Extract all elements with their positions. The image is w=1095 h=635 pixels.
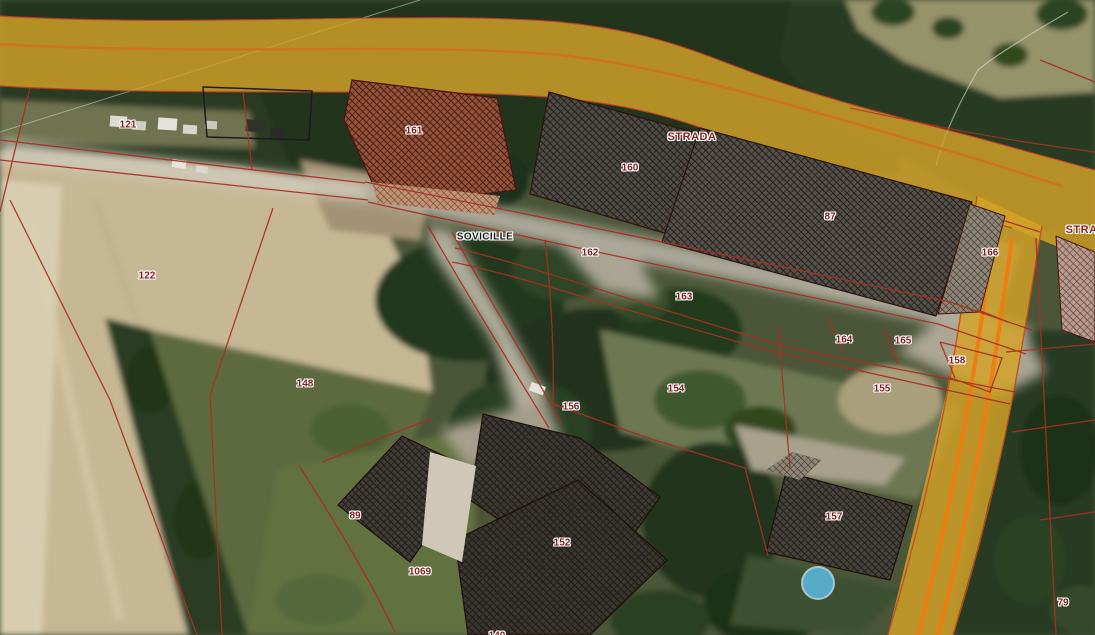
aerial-imagery — [0, 0, 1095, 635]
map-canvas[interactable]: 121161STRADA16087STRADASOVICILLE16216612… — [0, 0, 1095, 635]
